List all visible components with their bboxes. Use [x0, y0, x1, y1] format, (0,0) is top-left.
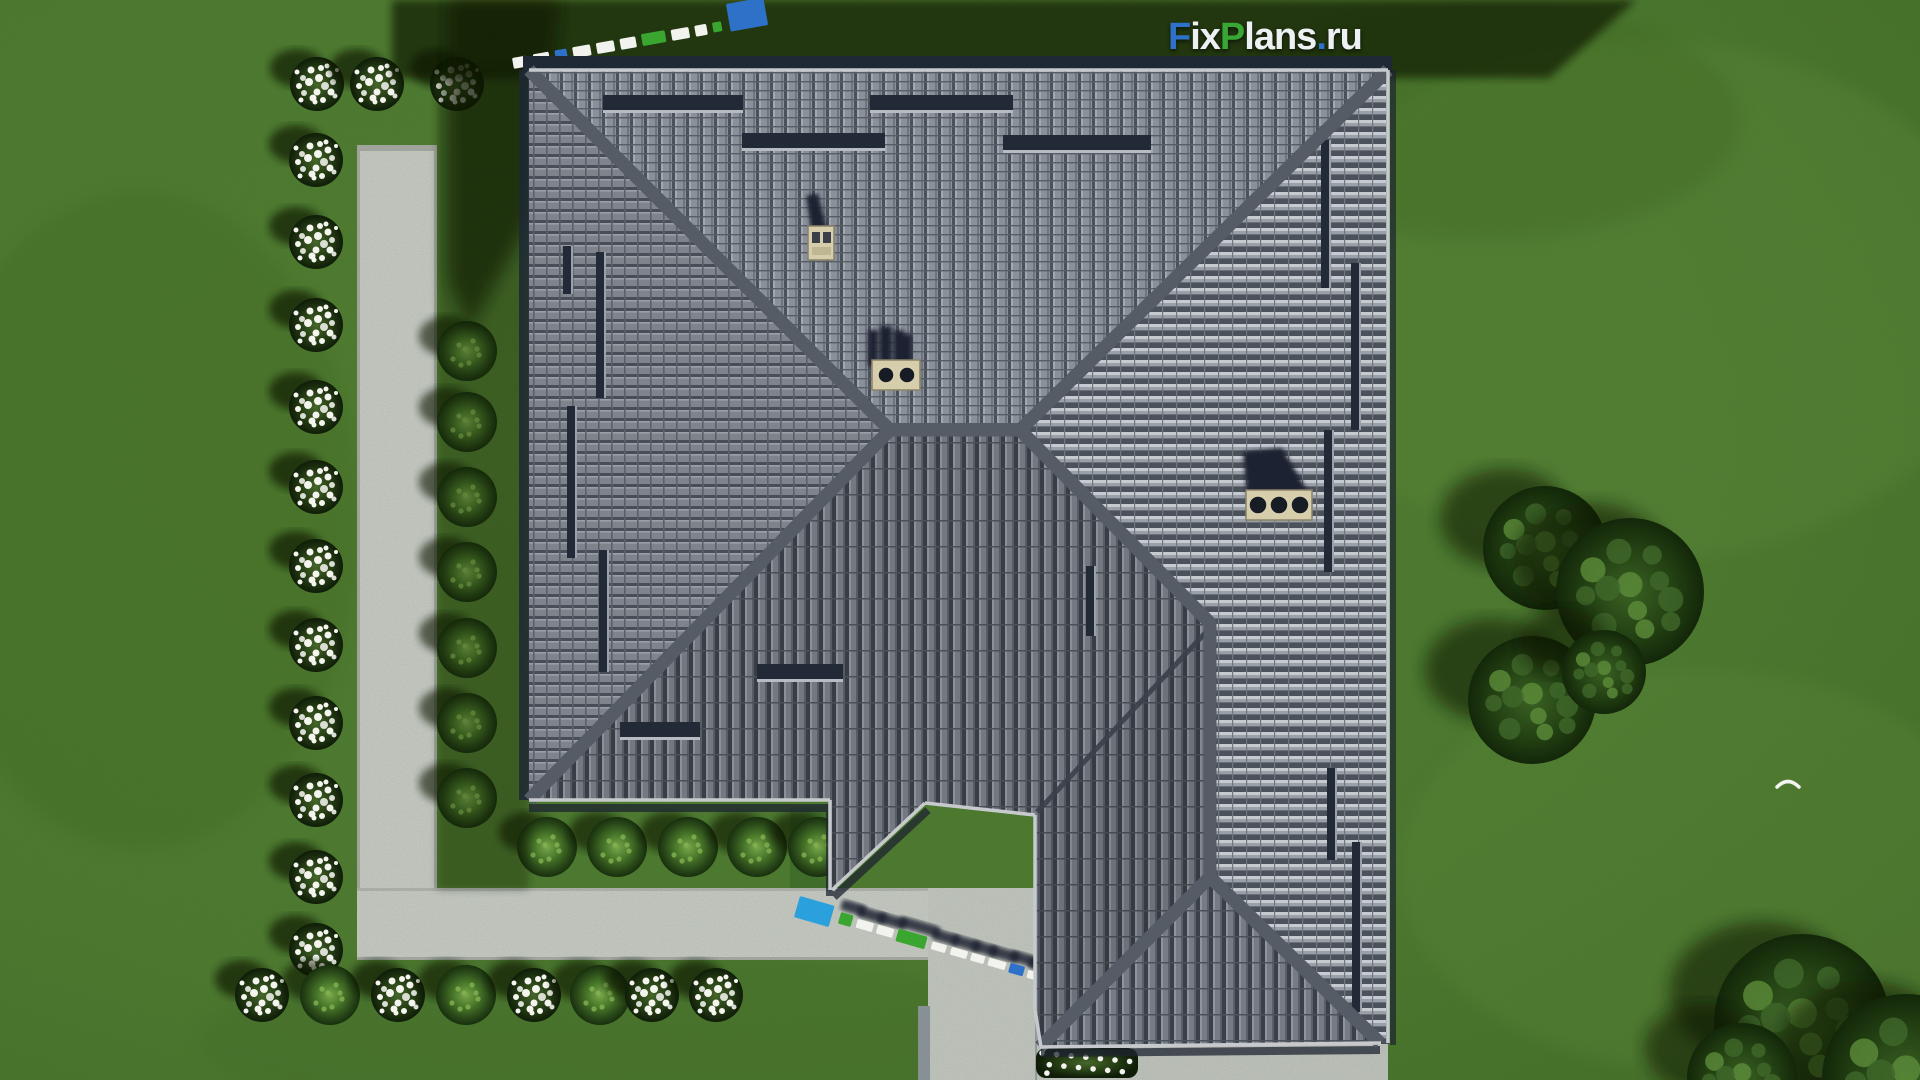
logo-part: F	[1168, 16, 1190, 59]
logo-part: ix	[1190, 16, 1220, 59]
logo-part: .	[1316, 16, 1326, 59]
logo-part: lans	[1244, 16, 1316, 59]
logo-part: ru	[1326, 16, 1362, 59]
logo-part: P	[1220, 16, 1244, 59]
right-eave-shadow	[1390, 70, 1396, 1045]
west-lawn-shade	[437, 70, 529, 890]
scene-canvas	[0, 0, 1920, 1080]
fixplans-logo: FixPlans.ru	[1168, 16, 1362, 59]
aerial-render: FixPlans.ru	[0, 0, 1920, 1080]
